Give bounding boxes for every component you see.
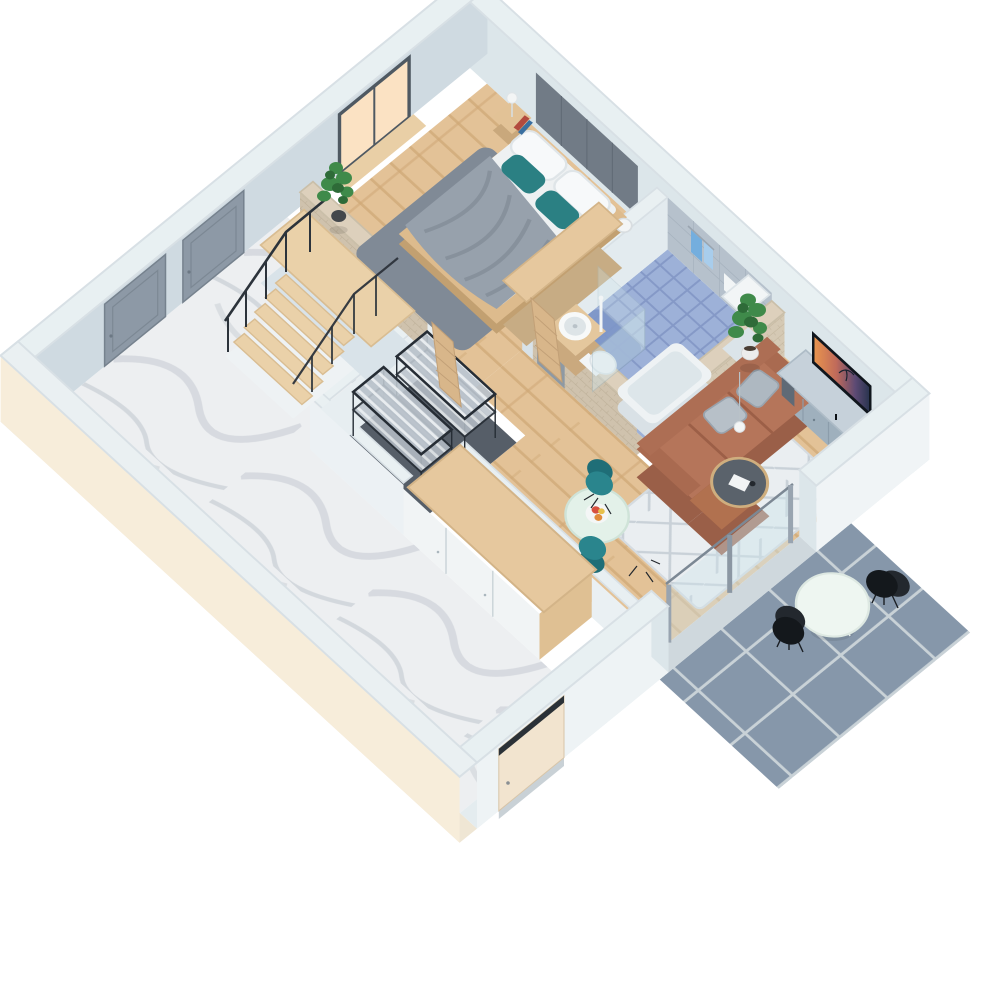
plant-soil bbox=[744, 346, 756, 351]
entry-handle bbox=[506, 781, 510, 785]
plant-pot bbox=[331, 210, 346, 222]
door-handle bbox=[187, 270, 190, 273]
floor-plan-render bbox=[0, 0, 1000, 1000]
lamp-shade bbox=[507, 93, 517, 103]
door-handle bbox=[109, 334, 112, 337]
isometric-apartment-scene bbox=[0, 0, 1000, 1000]
